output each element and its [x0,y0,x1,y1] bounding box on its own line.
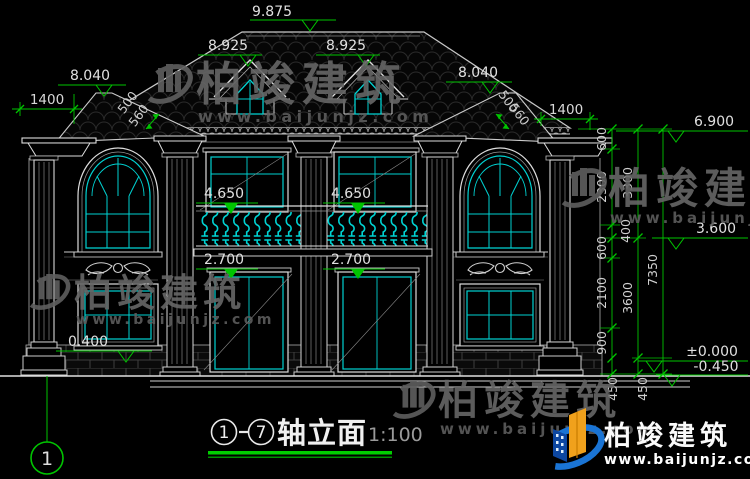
title-underline [208,451,392,455]
elevation-label: 8.925 [326,38,366,54]
axis-end-number: 7 [256,423,267,443]
elevation-label: 2.700 [204,252,244,268]
title-text: 轴立面 [277,416,367,450]
arch-window-right [456,148,544,257]
elevation-label: 9.875 [252,4,292,20]
watermark-logo-icon [23,270,74,314]
chain-dim-label: 7350 [645,254,660,286]
elevation-label: 6.900 [694,114,734,130]
first-floor-window-right [456,284,544,350]
elevation-label: 8.040 [458,65,498,81]
elevation-label: 4.650 [204,186,244,202]
brand-url: www.baijunjz.com [604,452,750,468]
watermark-text: 柏竣建筑 [438,378,622,424]
watermark-text: 柏竣建筑 [608,164,750,213]
watermark-url: www.baijunjz.com [76,312,275,328]
dim-ticks [608,125,668,379]
watermark-right: 柏竣建筑 www.baijunjz.com [554,163,750,227]
chain-dim-label: 900 [594,331,609,355]
title-underline-thin [208,457,392,459]
chain-dim-label: 2100 [594,277,609,309]
watermark-text: 柏竣建筑 [196,57,408,111]
wall-ornament-right [468,263,532,275]
watermark-url: www.baijunjz.com [198,107,433,126]
dim-label: 1400 [30,92,64,108]
title-scale: 1:100 [368,424,423,446]
axis-start-number: 1 [219,423,230,443]
drawing-title: 1 7 轴立面 1:100 [208,416,423,458]
dim-label: 1400 [549,102,583,118]
elevation-label: 8.925 [208,38,248,54]
chain-dim-label: 600 [594,127,609,151]
brand-name: 柏竣建筑 [604,420,732,452]
elevation-drawing: 9.875 8.925 8.925 8.040 8.040 6.900 3.60… [0,0,750,479]
chain-dim-label: 600 [594,236,609,260]
first-floor-door-right [335,268,419,372]
arch-window-left [74,148,162,257]
elevation-label: -0.450 [693,359,738,375]
elevation-label: ±0.000 [686,344,738,360]
elevation-label: 0.400 [68,334,108,350]
chain-dim-label: 3600 [620,282,635,314]
chain-dim-label: 450 [635,377,650,401]
watermark-left: 柏竣建筑 www.baijunjz.com [23,270,275,328]
elevation-label: 4.650 [331,186,371,202]
axis-bubble-number: 1 [41,448,53,470]
watermark-text: 柏竣建筑 [74,271,246,315]
elevation-label: 8.040 [70,68,110,84]
watermark-logo-icon [385,377,439,424]
elevation-label: 2.700 [331,252,371,268]
watermark-url: www.baijunjz.com [610,209,750,227]
